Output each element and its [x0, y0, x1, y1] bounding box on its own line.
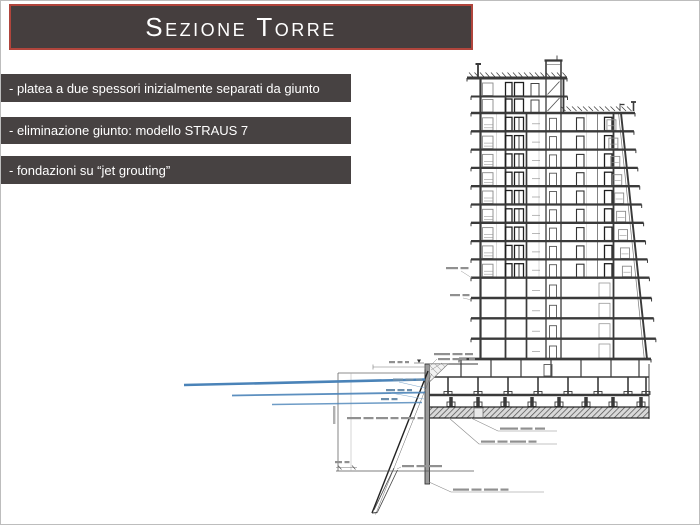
- slide: Sezione Torre - platea a due spessori in…: [0, 0, 700, 525]
- tower-section-drawing: [1, 1, 700, 525]
- ground-anchors: [184, 380, 425, 405]
- foundation-and-excavation: [333, 359, 650, 515]
- building-section: [459, 56, 656, 363]
